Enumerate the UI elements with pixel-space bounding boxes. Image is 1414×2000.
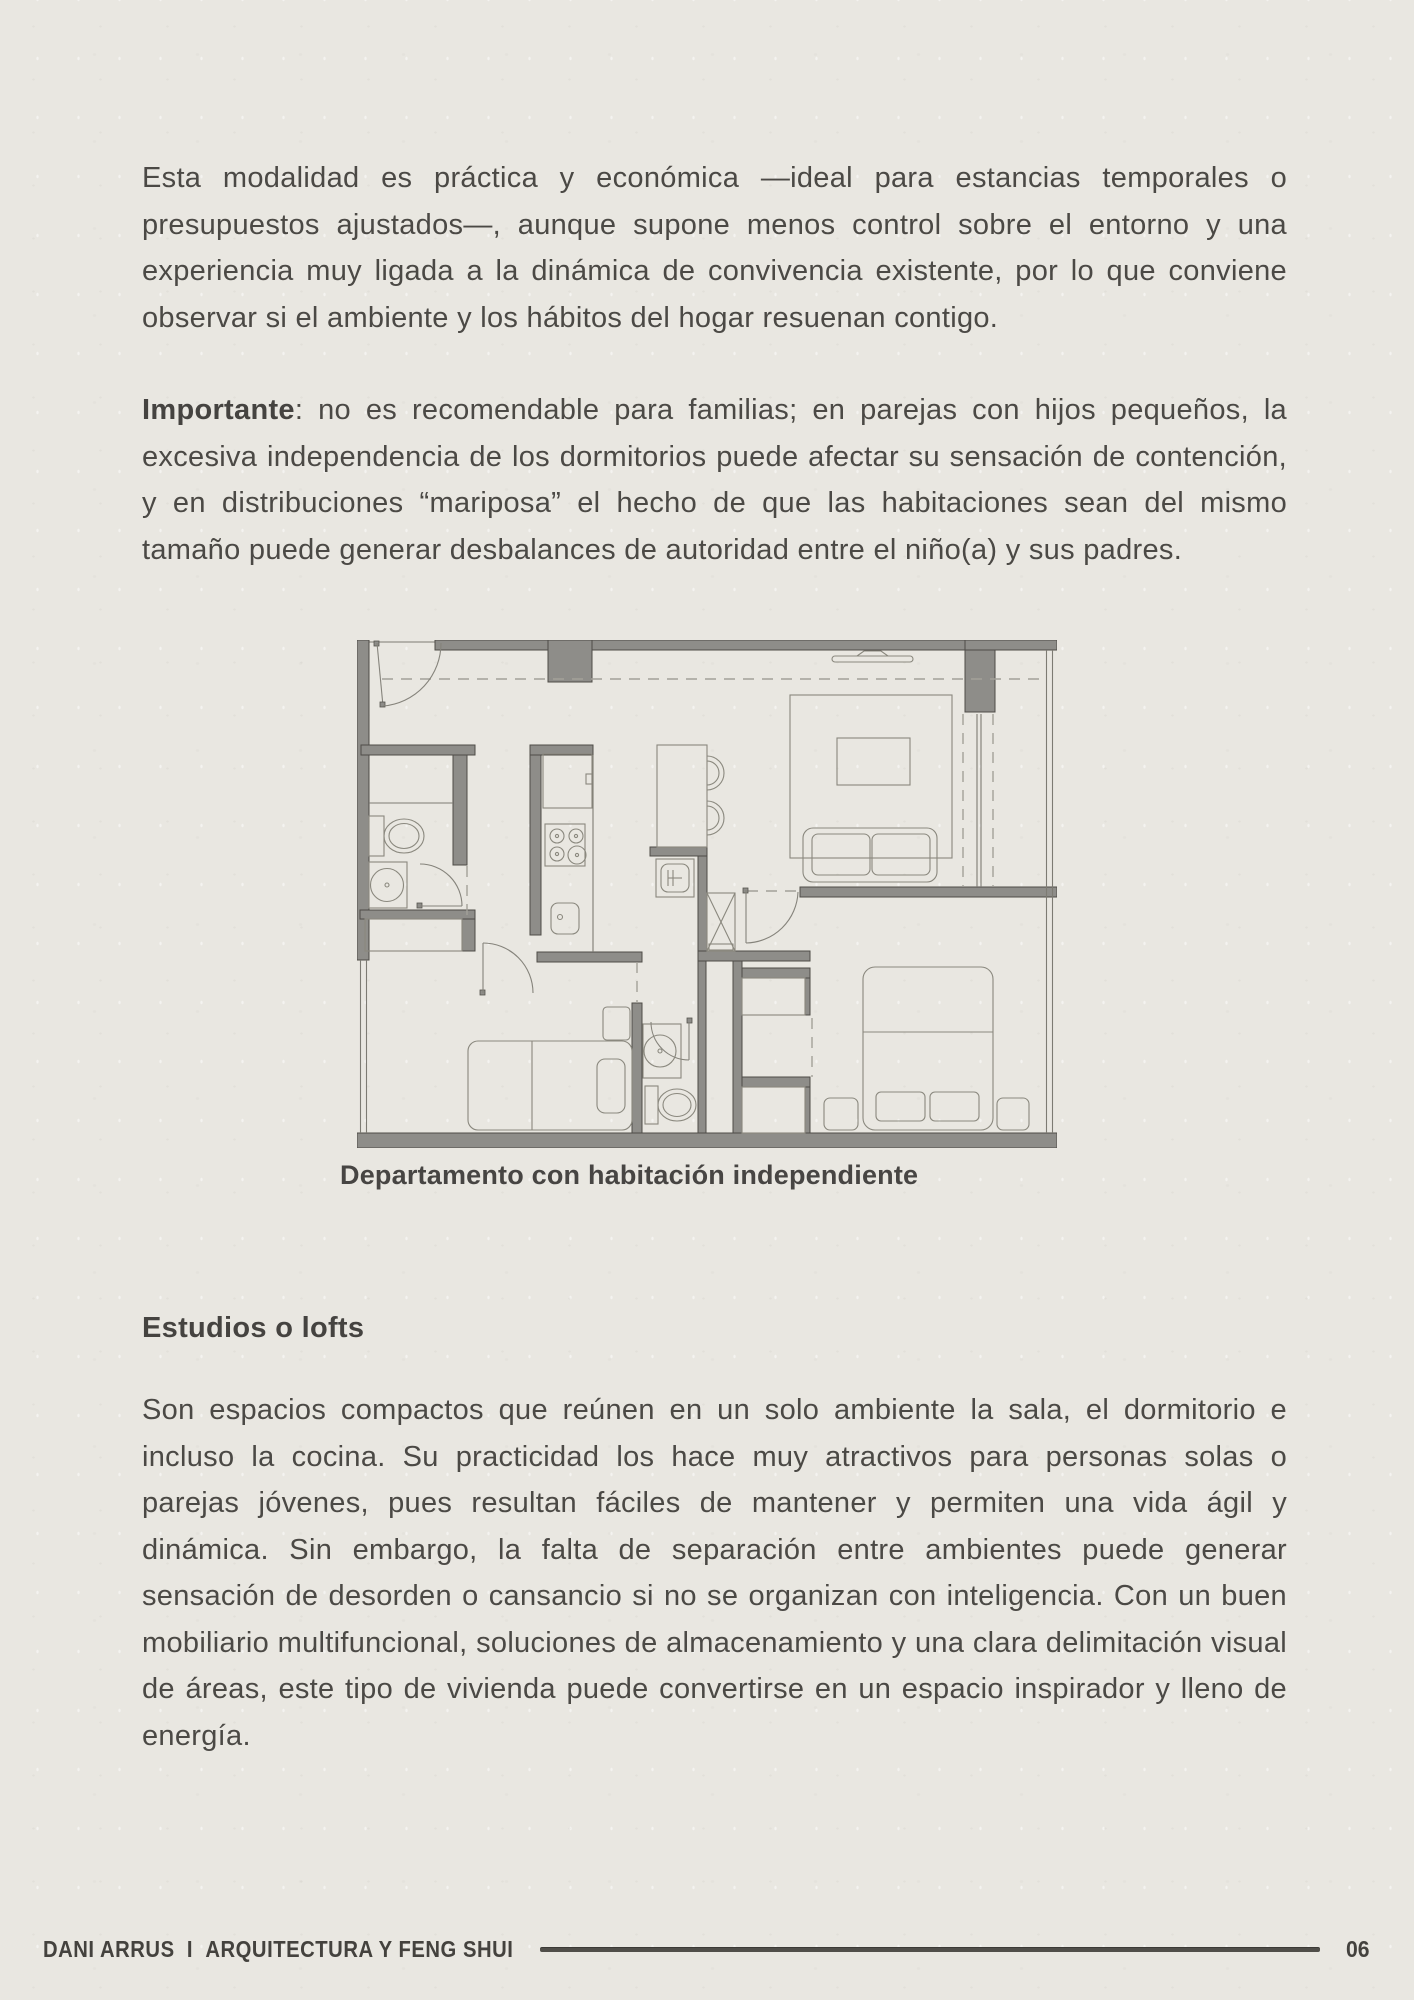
important-label: Importante	[142, 394, 295, 426]
independent-bedroom-door	[480, 943, 533, 995]
footer-title: ARQUITECTURA Y FENG SHUI	[205, 1936, 513, 1962]
section-paragraph: Son espacios compactos que reúnen en un …	[142, 1387, 1287, 1759]
section-heading: Estudios o lofts	[142, 1312, 364, 1345]
independent-bedroom-furniture	[365, 919, 632, 1130]
laundry-closet	[656, 859, 735, 951]
intro-paragraph: Esta modalidad es práctica y económica —…	[142, 155, 1287, 341]
master-bedroom-door	[743, 888, 798, 943]
page-number: 06	[1346, 1936, 1370, 1963]
bathroom-1-door	[417, 864, 462, 908]
footer-author: DANI ARRUS	[43, 1936, 175, 1962]
kitchen-island	[657, 745, 724, 847]
important-text: : no es recomendable para familias; en p…	[142, 394, 1287, 566]
kitchen-appliances	[543, 754, 593, 952]
floor-plan-drawing	[357, 640, 1057, 1148]
important-paragraph: Importante: no es recomendable para fami…	[142, 387, 1287, 573]
footer: DANI ARRUS I ARQUITECTURA Y FENG SHUI	[43, 1936, 513, 1963]
figure-caption: Departamento con habitación independient…	[340, 1160, 918, 1191]
floor-plan-figure	[357, 640, 1057, 1148]
master-bedroom-furniture	[742, 967, 1029, 1133]
book-page: { "page": { "background_color": "#e9e7e1…	[0, 0, 1414, 2000]
entry-door	[374, 641, 441, 707]
bathroom-1-fixtures	[369, 803, 453, 908]
bathroom-2-fixtures	[643, 1024, 696, 1124]
footer-separator-icon: I	[187, 1936, 193, 1962]
living-room-furniture	[790, 651, 952, 882]
footer-rule	[540, 1947, 1320, 1952]
dashed-guides	[382, 679, 1043, 1077]
